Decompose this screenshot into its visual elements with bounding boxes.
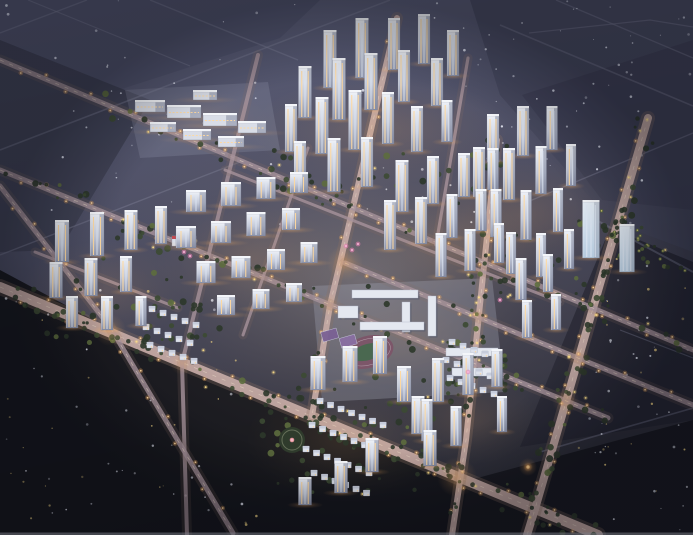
screenshot-root — [0, 0, 693, 535]
aerial-city-render — [0, 0, 693, 535]
